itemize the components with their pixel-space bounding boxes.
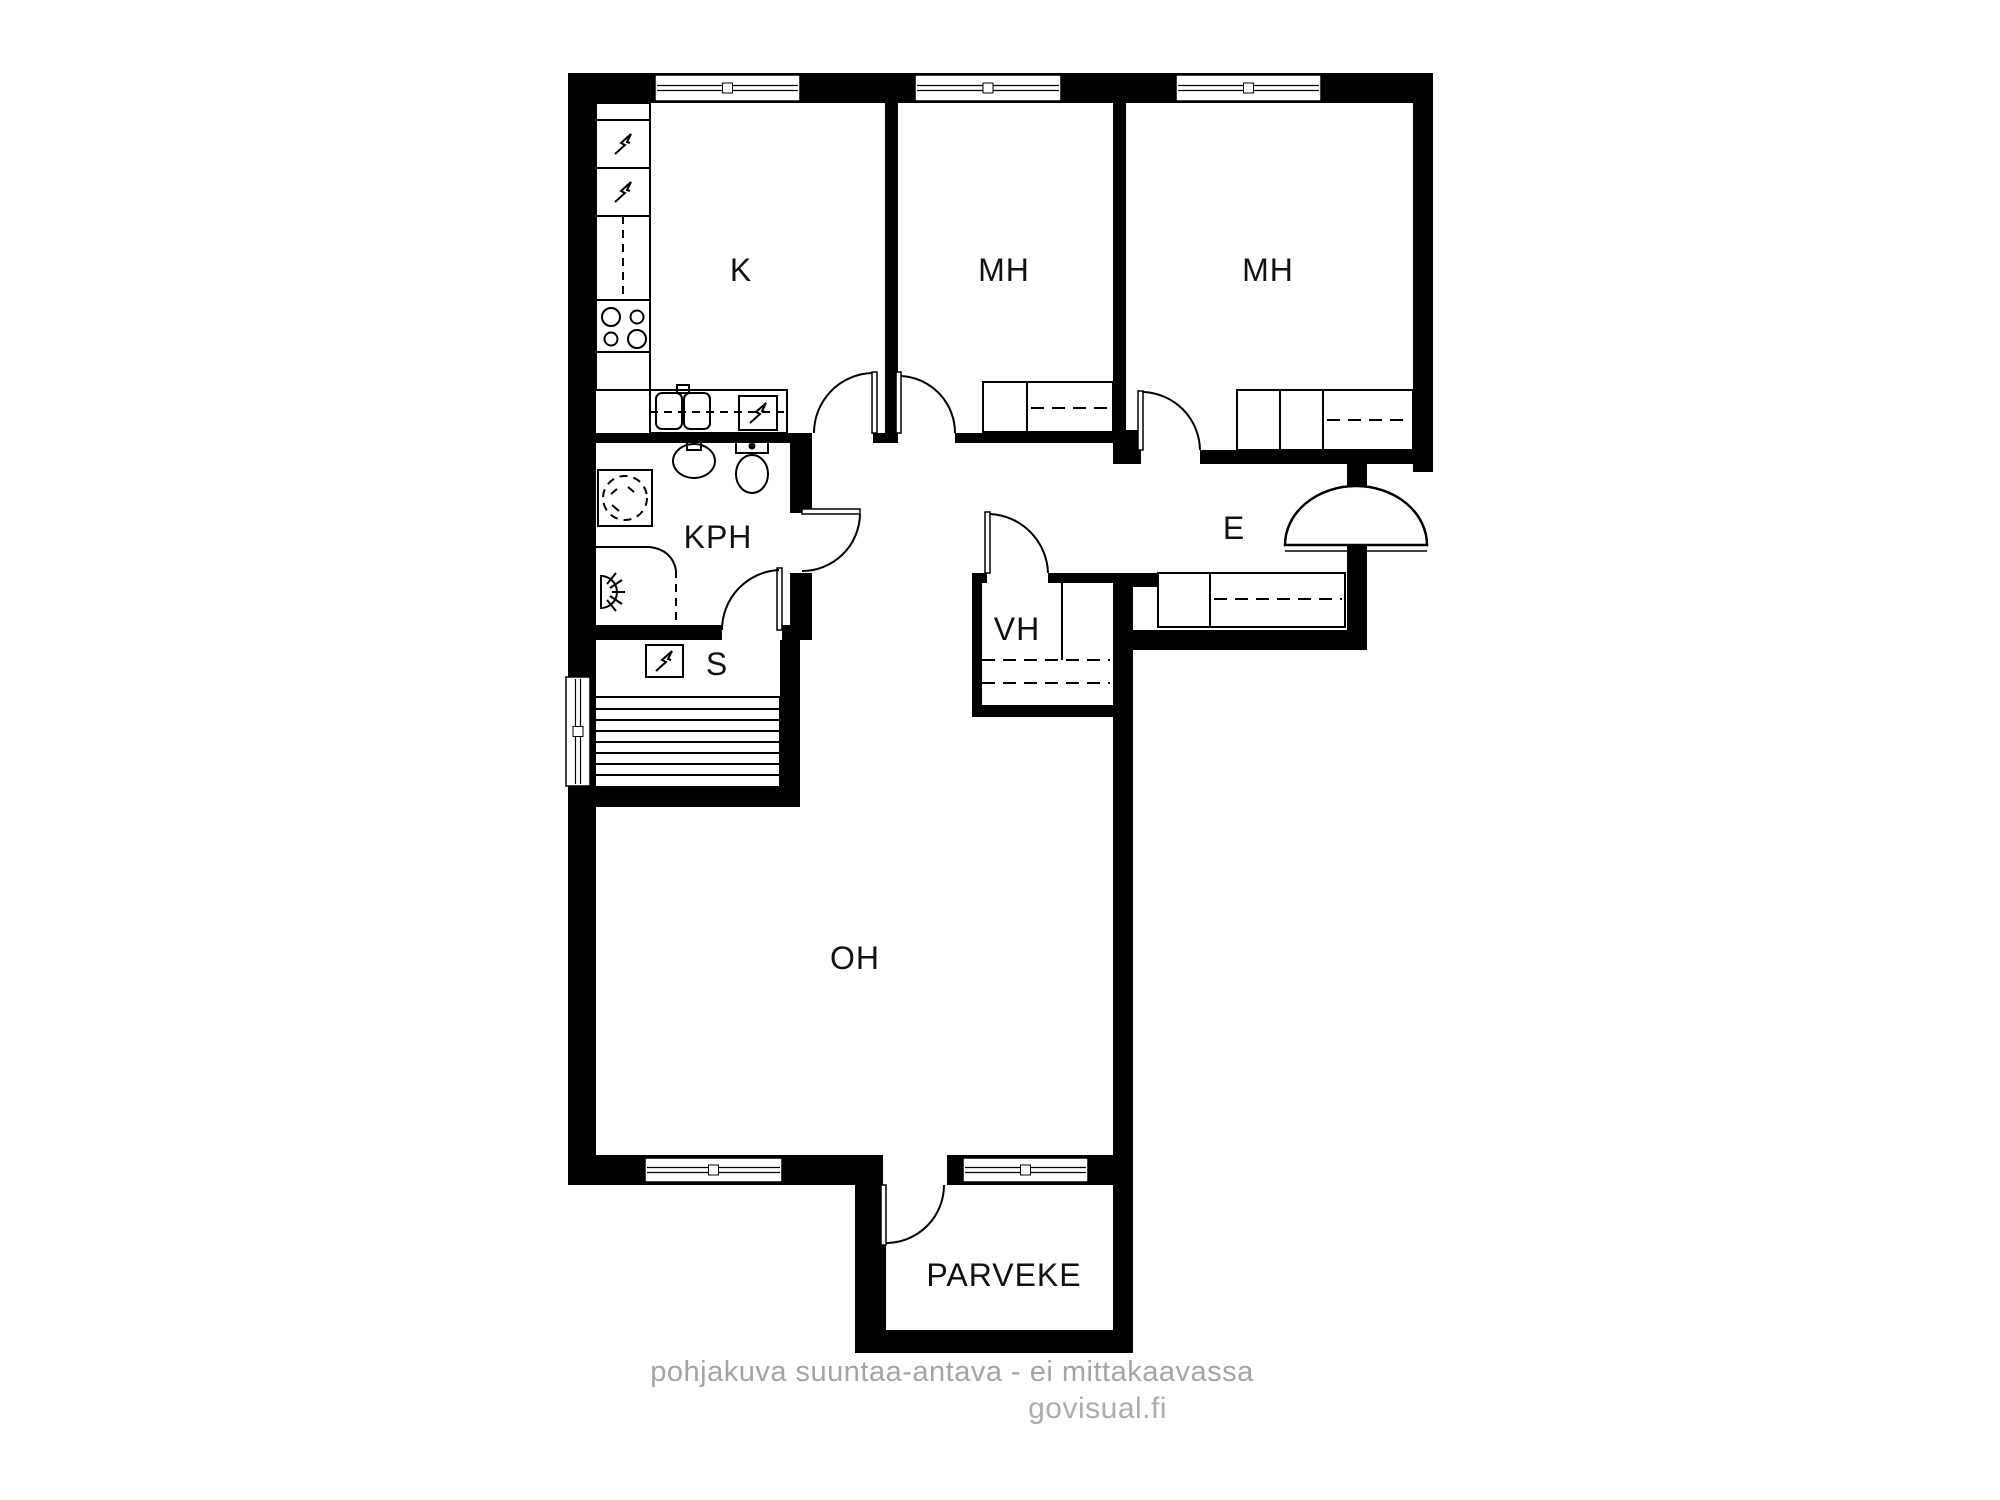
room-label-kitchen: K	[730, 252, 752, 288]
washing-machine-box	[598, 470, 652, 526]
room-label-sauna: S	[706, 646, 728, 682]
door-sauna-leaf	[777, 568, 782, 630]
shower-screen-curve	[650, 547, 676, 570]
stove-burner	[605, 333, 618, 346]
wall-sauna-right	[780, 640, 800, 787]
room-label-entry: E	[1223, 510, 1245, 546]
wall-kph-bottom-right	[782, 625, 812, 640]
wall-entry-stub-upper	[1347, 464, 1367, 487]
watermark-credit: govisual.fi	[867, 1392, 1167, 1426]
window-bedroom-1-tick	[983, 83, 993, 93]
wall-vh-bottom	[972, 705, 1133, 717]
room-label-closet: VH	[994, 611, 1040, 647]
floorplan-canvas: KMHMHKPHSVHEOHPARVEKE	[0, 0, 2000, 1500]
door-sauna-arc	[722, 570, 779, 630]
washing-machine-circle	[603, 476, 647, 520]
stove-burner	[602, 308, 620, 326]
door-bedroom-1-arc	[901, 376, 955, 433]
wall-sauna-bottom	[568, 787, 800, 807]
wall-door-pier	[873, 433, 898, 443]
door-closet-arc	[990, 514, 1048, 573]
room-label-living-room: OH	[830, 940, 880, 976]
window-kitchen-tick	[723, 83, 733, 93]
wall-kph-right-upper	[790, 443, 812, 513]
sauna-heater-icon	[656, 651, 672, 671]
door-bedroom-2-leaf	[1138, 391, 1143, 450]
door-balcony-leaf	[881, 1185, 886, 1245]
wardrobe-bedroom-2	[1237, 390, 1413, 450]
door-bedroom-1-leaf	[896, 372, 901, 433]
wall-balcony-bottom	[855, 1330, 1133, 1353]
washer-mark	[612, 505, 619, 511]
wall-mh2-bottom	[1200, 450, 1413, 464]
watermark-disclaimer: pohjakuva suuntaa-antava - ei mittakaava…	[552, 1356, 1352, 1389]
freezer-icon	[615, 182, 631, 202]
wall-entry-left-stub	[1133, 573, 1158, 587]
wall-entry-bottom	[1133, 630, 1367, 650]
wall-kph-bottom-left	[590, 625, 722, 640]
stove-burner	[631, 311, 644, 324]
balcony-door-opening	[883, 1155, 947, 1186]
window-bedroom-2-tick	[1244, 83, 1254, 93]
toilet-bowl	[736, 455, 768, 493]
room-label-bedroom-1: MH	[978, 252, 1030, 288]
wall-mh1-bottom	[955, 433, 1113, 443]
wall-oh-right	[1113, 573, 1133, 1353]
door-closet-leaf	[985, 512, 990, 573]
wardrobe-entry	[1158, 573, 1345, 627]
room-label-bedroom-2: MH	[1242, 252, 1294, 288]
door-bedroom-2-arc	[1143, 392, 1200, 450]
wardrobe-bedroom-1	[983, 382, 1113, 432]
washer-mark	[628, 487, 634, 492]
room-label-balcony: PARVEKE	[926, 1257, 1081, 1293]
window-living-left-tick	[709, 1165, 719, 1175]
door-kitchen-arc	[814, 373, 872, 433]
wall-mh2-bottom-left	[1133, 450, 1141, 464]
wall-mh1-mh2	[1113, 103, 1126, 433]
stove-burner	[628, 330, 646, 348]
window-living-right-tick	[1021, 1165, 1031, 1175]
door-balcony-arc	[886, 1185, 944, 1243]
floor-plan-page: KMHMHKPHSVHEOHPARVEKE pohjakuva suuntaa-…	[0, 0, 2000, 1500]
window-sauna-tick	[573, 727, 583, 737]
entrance-door-swing	[1285, 486, 1427, 545]
room-label-bathroom: KPH	[684, 519, 753, 555]
fridge-icon	[615, 134, 631, 154]
door-kitchen-leaf	[872, 372, 877, 433]
wall-vh-left	[972, 573, 982, 717]
door-bathroom-leaf	[802, 509, 860, 514]
entrance-door-hinge	[1347, 545, 1367, 552]
wall-right-upper	[1413, 73, 1433, 472]
washer-mark	[611, 489, 617, 494]
toilet-button	[750, 444, 755, 449]
door-bathroom-arc	[802, 514, 860, 571]
